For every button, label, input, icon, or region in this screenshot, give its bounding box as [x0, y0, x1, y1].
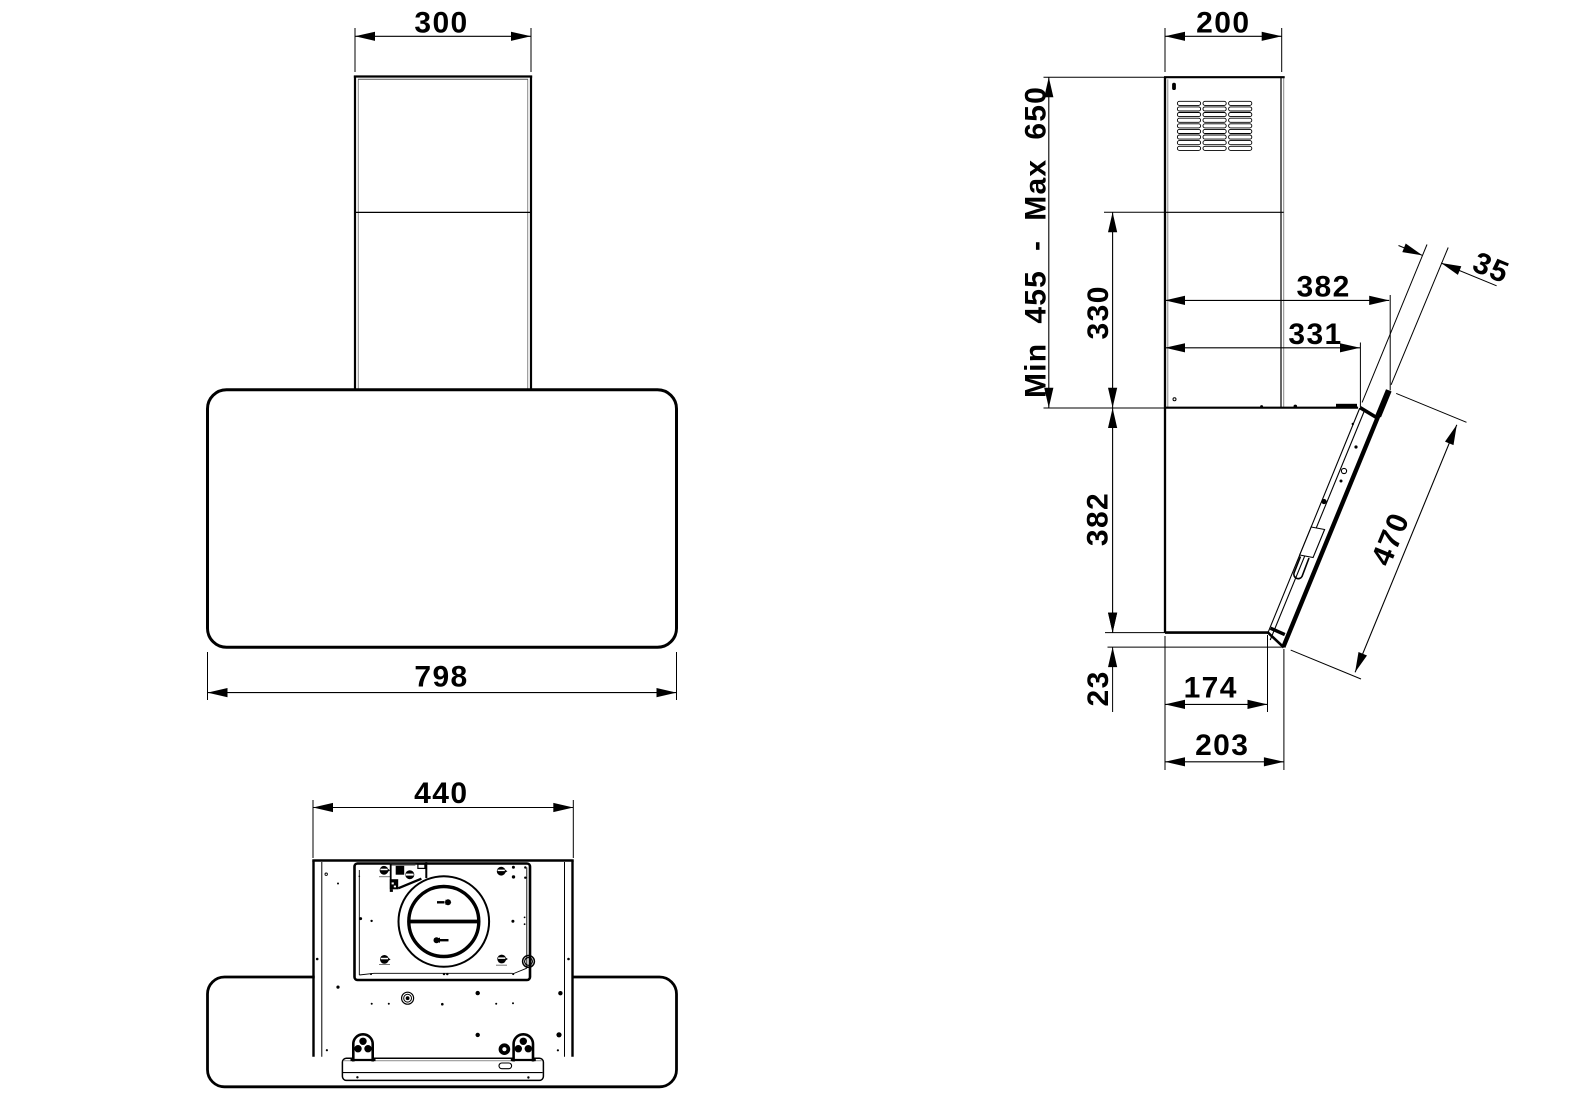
svg-text:200: 200 [1196, 6, 1250, 39]
svg-text:440: 440 [414, 777, 468, 810]
svg-text:Min 455 - Max 650: Min 455 - Max 650 [1020, 86, 1053, 398]
svg-text:23: 23 [1082, 670, 1115, 706]
svg-text:330: 330 [1082, 285, 1115, 339]
svg-text:174: 174 [1184, 672, 1238, 705]
svg-text:203: 203 [1195, 729, 1249, 762]
svg-text:798: 798 [414, 661, 468, 694]
svg-text:300: 300 [414, 6, 468, 39]
svg-text:331: 331 [1288, 318, 1342, 351]
svg-text:382: 382 [1296, 271, 1350, 304]
svg-text:382: 382 [1082, 492, 1115, 546]
